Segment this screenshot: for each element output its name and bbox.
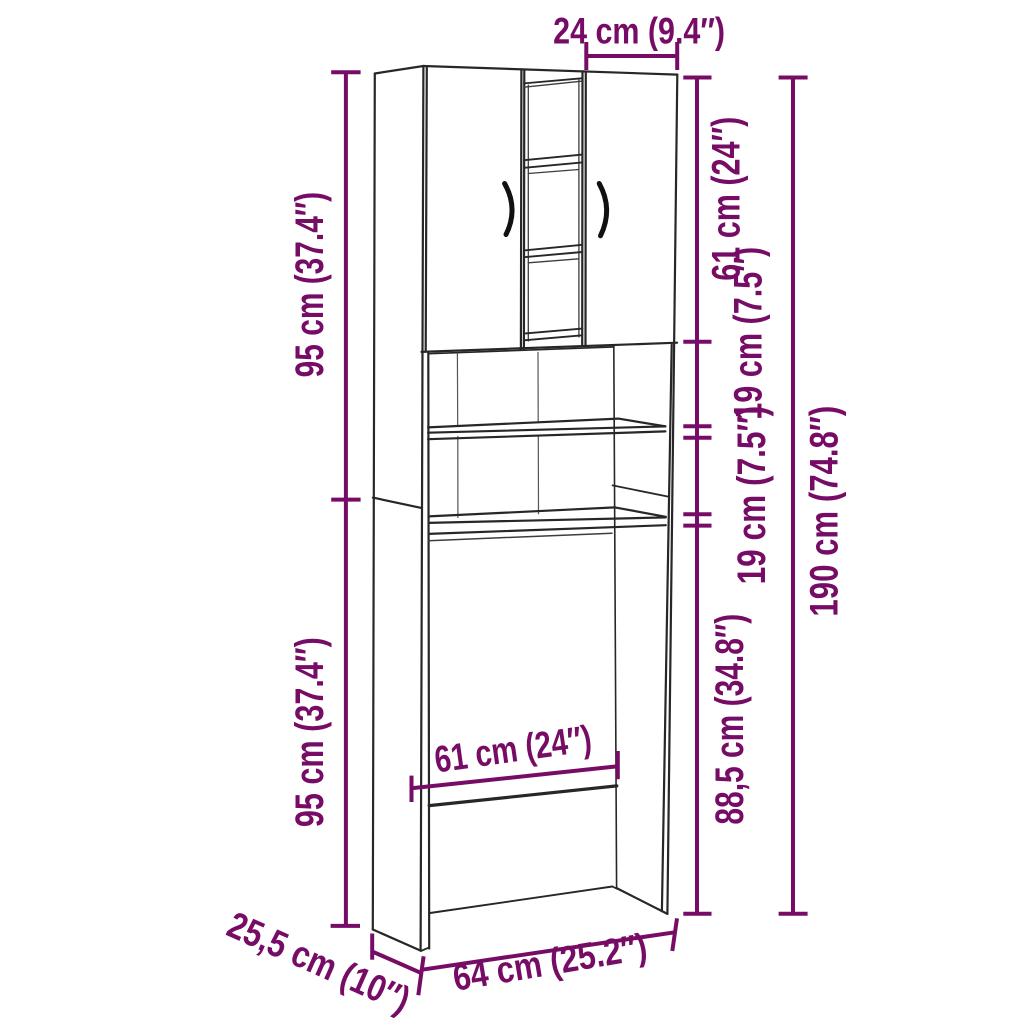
svg-text:95 cm (37.4″): 95 cm (37.4″)	[288, 637, 332, 827]
svg-text:19 cm (7.5″): 19 cm (7.5″)	[730, 406, 774, 585]
svg-text:190 cm (74.8″): 190 cm (74.8″)	[802, 406, 846, 617]
svg-text:95 cm (37.4″): 95 cm (37.4″)	[288, 192, 332, 377]
svg-text:88,5 cm (34.8″): 88,5 cm (34.8″)	[708, 614, 752, 825]
svg-text:24 cm (9.4″): 24 cm (9.4″)	[553, 10, 725, 52]
svg-text:19 cm (7.5″): 19 cm (7.5″)	[727, 247, 771, 420]
